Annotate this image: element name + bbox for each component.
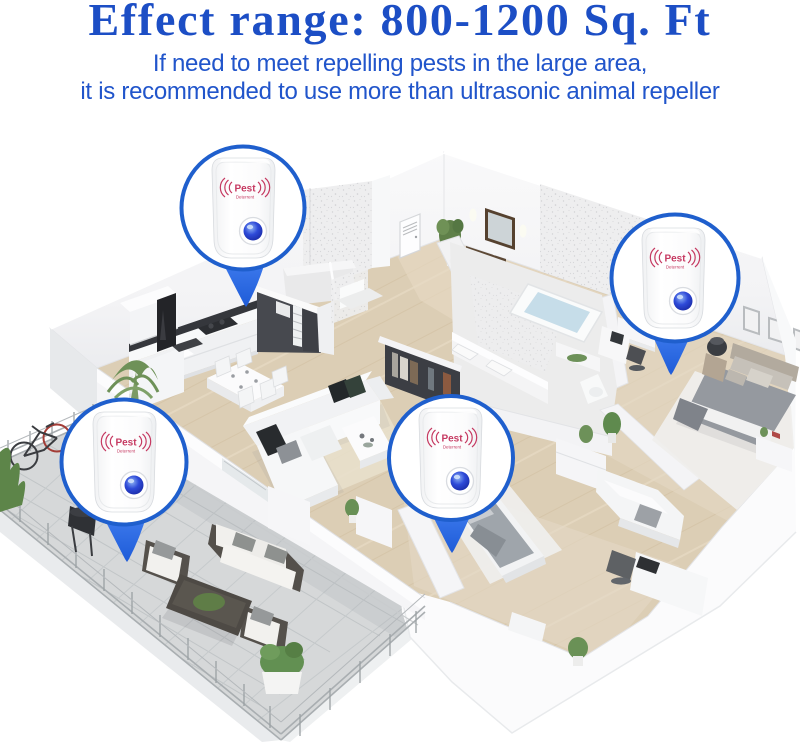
svg-text:Pest: Pest (115, 438, 137, 449)
svg-text:Pest: Pest (441, 434, 463, 445)
svg-text:Deterrent: Deterrent (117, 449, 136, 454)
svg-text:Pest: Pest (664, 254, 686, 265)
svg-text:Deterrent: Deterrent (236, 195, 255, 200)
svg-text:Pest: Pest (234, 184, 256, 195)
svg-text:Deterrent: Deterrent (443, 445, 462, 450)
svg-text:Deterrent: Deterrent (666, 265, 685, 270)
